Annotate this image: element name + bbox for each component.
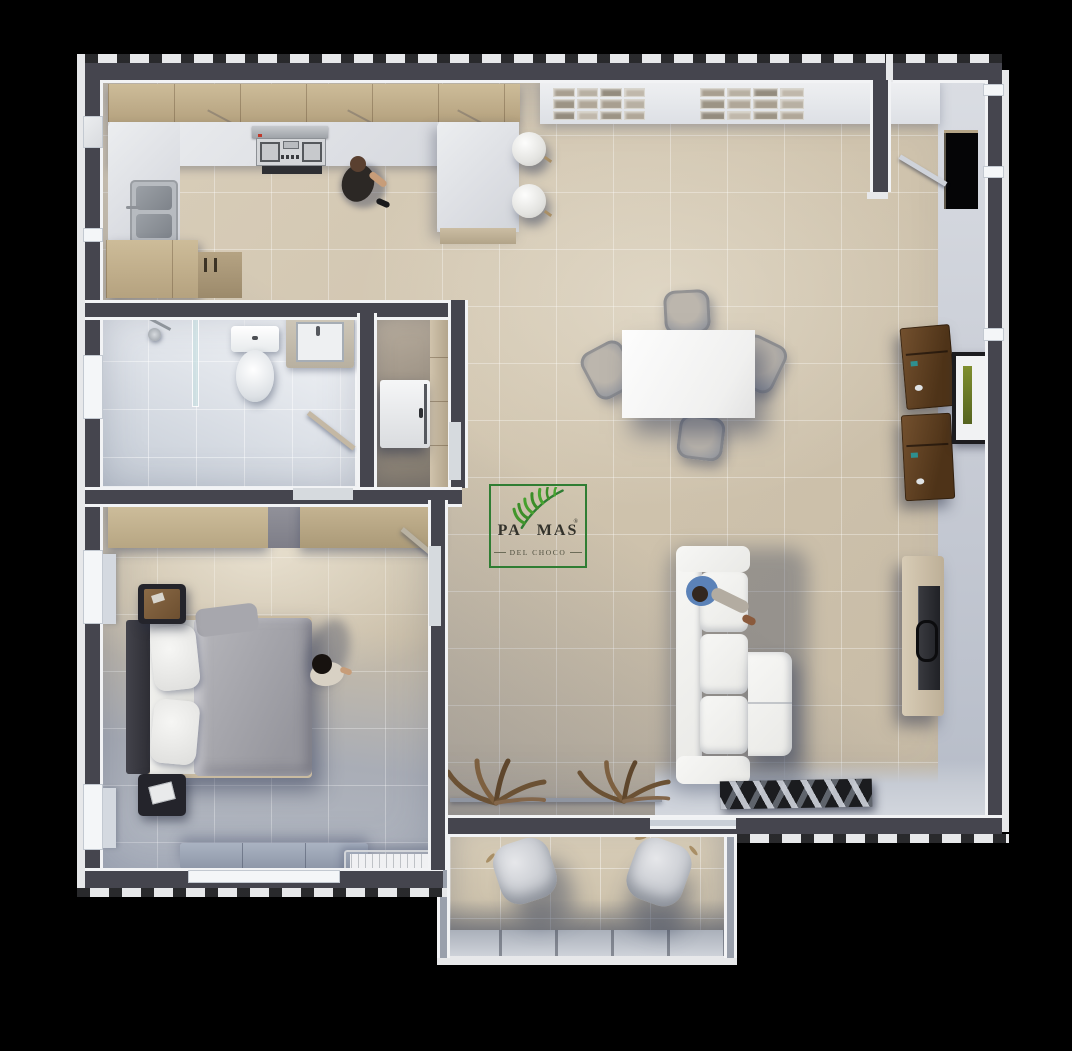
brand-logo: PA MAS ® DEL CHOCO <box>489 484 587 568</box>
toilet-bowl <box>236 350 274 402</box>
person-foot <box>375 197 390 208</box>
wall-art-tile <box>624 88 646 97</box>
sofa-chaise <box>748 652 792 756</box>
wall-art-tile <box>553 111 575 120</box>
laundry-cabinet <box>430 313 448 489</box>
wall-art-tile <box>727 88 752 97</box>
balcony-railing-wall <box>443 930 731 956</box>
bed-pillow-bottom <box>149 698 200 766</box>
wall-art-tile <box>753 88 778 97</box>
dining-chair-top <box>663 289 711 335</box>
desk-lower <box>901 413 955 501</box>
entry-stub-cap <box>867 192 888 199</box>
vanity-faucet <box>316 326 320 336</box>
shower-glass-screen <box>193 320 198 406</box>
bed-duvet <box>194 618 312 776</box>
sink-faucet <box>126 206 140 209</box>
nightstand-top <box>138 584 186 624</box>
wall-art-tile <box>553 99 575 108</box>
person-seated <box>684 568 764 644</box>
balcony-outer-cap <box>437 956 737 965</box>
wall-art-tile <box>624 111 646 120</box>
sofa-seat-3 <box>700 696 748 754</box>
bottom-cap-living <box>737 834 1009 843</box>
geometric-rug <box>720 779 872 810</box>
person-feet <box>741 613 757 626</box>
peninsula-base <box>440 228 516 244</box>
desk-item-teal <box>910 361 917 367</box>
sink-basin-top <box>136 186 172 210</box>
floor-plan-scene: PA MAS ® DEL CHOCO <box>0 0 1072 1051</box>
toilet-flush-button <box>252 336 258 340</box>
dry-plant-2 <box>576 756 672 806</box>
wall-art-tiles-2 <box>700 88 804 120</box>
wall-art-tile <box>727 99 752 108</box>
wall-art-tile <box>577 111 599 120</box>
kitchen-upper-cabinets <box>108 84 520 122</box>
entry-doorway-dark <box>944 130 978 209</box>
wall-art-tile <box>700 111 725 120</box>
wall-art-tile <box>753 111 778 120</box>
burner-grate-left <box>260 142 280 162</box>
wall-entry-stub <box>870 80 891 192</box>
bar-stool-1 <box>512 132 546 166</box>
oven-front <box>262 166 322 174</box>
wall-art-tile <box>700 99 725 108</box>
desk-item-teal <box>911 453 918 458</box>
window-sill <box>102 788 116 848</box>
bedroom-bench <box>180 843 368 869</box>
wall-art-tile <box>600 99 622 108</box>
wall-art-tiles-1 <box>553 88 645 120</box>
washer-door-line <box>424 384 427 444</box>
balcony-ledge-shadow <box>450 900 724 930</box>
shower-head <box>148 328 161 341</box>
hood-light <box>258 134 262 137</box>
brand-prefix: PA <box>498 522 522 540</box>
tagline-rule-left <box>494 552 506 553</box>
balcony-sliding-door <box>650 817 736 829</box>
registered-mark: ® <box>573 519 578 525</box>
wall-art-tile <box>577 88 599 97</box>
bedroom-door-gap <box>429 546 441 626</box>
wall-art-tile <box>600 88 622 97</box>
outer-wall-cap-top-right <box>893 54 1002 63</box>
person-cooking <box>334 154 394 218</box>
wardrobe-gap <box>268 500 300 548</box>
desk-upper <box>900 324 957 410</box>
person-legs <box>709 586 751 615</box>
person-standing <box>300 644 364 702</box>
wall-art-tile <box>780 111 805 120</box>
sofa-armrest-bottom <box>676 756 750 784</box>
wall-art-tile <box>780 88 805 97</box>
wall-bath-laundry <box>357 313 377 488</box>
sofa-chaise-seam <box>748 702 792 704</box>
small-window <box>83 228 103 242</box>
bathroom-door-gap <box>293 488 353 500</box>
brand-suffix: MAS <box>537 522 579 540</box>
outer-wall-cap-left <box>77 54 85 895</box>
window-sill <box>102 554 116 624</box>
wall-bath-bottom <box>85 487 462 507</box>
washer-handle <box>419 408 423 418</box>
balcony-right-wall <box>724 818 737 958</box>
bed-headboard <box>126 620 150 774</box>
nightstand-bottom <box>138 774 186 816</box>
outer-wall-left <box>85 80 103 885</box>
chair-seat <box>663 289 711 335</box>
laundry-door-gap <box>449 422 461 480</box>
stove-controls <box>283 141 299 149</box>
kitchen-window <box>83 116 103 148</box>
right-window-3 <box>983 328 1004 341</box>
bedroom-window-1 <box>83 550 103 624</box>
nightstand-book <box>148 781 176 804</box>
dry-plant-1 <box>444 756 548 806</box>
desk-shelf-line <box>906 350 948 356</box>
wall-art-tile <box>780 99 805 108</box>
range-hood <box>252 126 328 138</box>
sink-basin-bottom <box>136 214 172 238</box>
desk-item-white <box>916 478 924 484</box>
bathroom-window <box>83 355 103 419</box>
bedroom-window-2 <box>83 784 103 850</box>
outer-wall-cap-right <box>1002 70 1009 832</box>
dining-table <box>622 330 755 418</box>
wall-art-tile <box>753 99 778 108</box>
person-head <box>692 586 708 602</box>
wall-art-tile <box>577 99 599 108</box>
wall-art-tile <box>727 111 752 120</box>
tv-mount-handle <box>916 620 938 662</box>
tagline-rule-right <box>570 552 582 553</box>
person-head <box>312 654 332 674</box>
burner-grate-right <box>302 142 322 162</box>
cabinet-handle <box>214 258 217 272</box>
wall-notch <box>886 54 893 82</box>
dining-chair-bottom <box>675 413 726 462</box>
tagline-row: DEL CHOCO <box>491 548 585 557</box>
stove-knobs <box>281 155 301 159</box>
right-window-1 <box>983 84 1004 96</box>
desk-item-white <box>915 385 923 392</box>
brand-name: PA MAS <box>491 522 585 540</box>
chair-seat <box>675 413 726 462</box>
outer-wall-top <box>85 63 887 83</box>
brand-tagline: DEL CHOCO <box>510 548 567 557</box>
wall-kitchen-bottom <box>85 300 462 320</box>
kitchen-peninsula <box>437 122 519 232</box>
wardrobe-closet-left <box>108 500 268 548</box>
vanity-sink <box>296 322 344 362</box>
bottom-cap-bedroom <box>77 888 447 897</box>
wall-art-tile <box>553 88 575 97</box>
outer-wall-cap-top <box>85 54 887 63</box>
bedroom-bottom-window <box>188 870 340 883</box>
desk-shelf-line <box>906 443 948 447</box>
picture-art <box>963 366 972 424</box>
wall-art-tile <box>600 111 622 120</box>
kitchen-base-cabinet <box>106 240 198 298</box>
wall-art-tile <box>700 88 725 97</box>
right-window-2 <box>983 166 1004 178</box>
bed-pillow-top <box>149 624 201 692</box>
bar-stool-2 <box>512 184 546 218</box>
cabinet-handle <box>204 258 207 272</box>
wall-art-tile <box>624 99 646 108</box>
person-head <box>350 156 366 172</box>
